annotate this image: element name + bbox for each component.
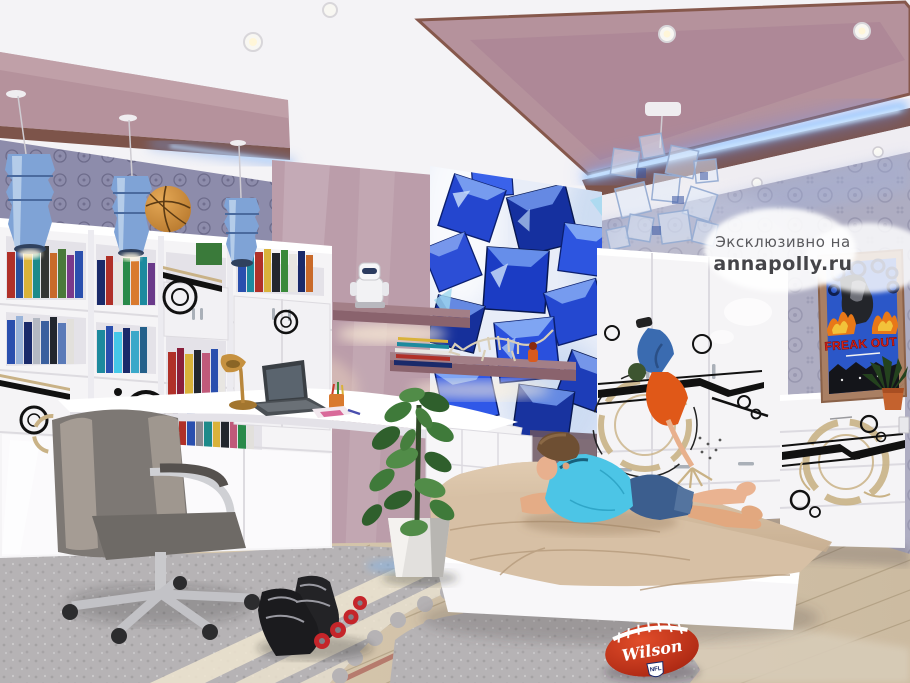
robot-visor [362, 268, 377, 274]
watermark-bubble-tiny [710, 330, 734, 344]
decal-head [628, 363, 646, 381]
watermark-site: annapolly.ru [713, 253, 852, 275]
door-handle [712, 364, 716, 379]
watermark-prefix: Эксклюзивно на [715, 233, 850, 251]
cabinet-handle [192, 308, 195, 320]
green-box [196, 243, 222, 265]
chandelier-canopy [645, 102, 681, 116]
light-switch [899, 417, 909, 433]
basketball [145, 186, 191, 232]
plant-stem [417, 405, 419, 520]
drawer-handle [738, 462, 754, 466]
toy-figure [528, 342, 538, 362]
kids-bedroom-render: FREAK OUT [0, 0, 910, 683]
cabinet-handle [200, 308, 203, 320]
boy-ear [563, 463, 570, 470]
watermark-bubble-small [724, 298, 772, 326]
chair-back-stripe [60, 418, 98, 550]
